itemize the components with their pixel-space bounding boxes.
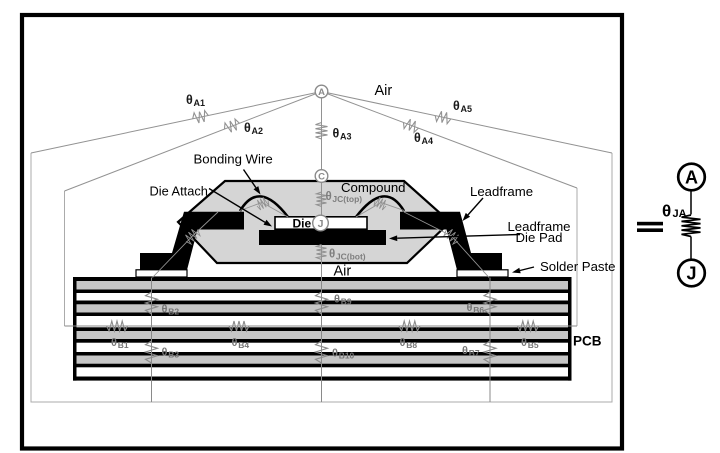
svg-text:B7: B7 [469, 348, 480, 358]
svg-text:Die Pad: Die Pad [516, 230, 563, 245]
svg-text:θ: θ [334, 294, 340, 306]
svg-text:JC(bot): JC(bot) [336, 252, 366, 262]
svg-text:B5: B5 [528, 340, 539, 350]
svg-text:Air: Air [334, 264, 352, 280]
svg-text:Bonding Wire: Bonding Wire [194, 152, 273, 167]
svg-text:B10: B10 [339, 351, 355, 361]
svg-text:θ: θ [414, 131, 421, 145]
svg-text:θ: θ [244, 121, 251, 135]
svg-text:A: A [318, 87, 325, 98]
svg-text:A2: A2 [252, 126, 264, 136]
svg-text:θ: θ [453, 99, 460, 113]
svg-text:θ: θ [162, 347, 168, 359]
svg-text:θ: θ [232, 337, 238, 349]
svg-text:B2: B2 [168, 307, 179, 317]
svg-text:θ: θ [329, 249, 335, 261]
svg-text:PCB: PCB [573, 333, 602, 348]
svg-text:Die Attach: Die Attach [150, 184, 208, 199]
svg-text:θ: θ [162, 304, 168, 316]
svg-text:Leadframe: Leadframe [470, 184, 533, 199]
svg-text:θ: θ [111, 337, 117, 349]
svg-text:θ: θ [521, 337, 527, 349]
svg-text:C: C [318, 172, 325, 183]
svg-text:B1: B1 [118, 340, 129, 350]
svg-text:J: J [318, 218, 324, 230]
svg-text:θ: θ [662, 202, 671, 221]
svg-text:A5: A5 [461, 104, 473, 114]
svg-text:A3: A3 [340, 132, 352, 142]
svg-text:B6: B6 [473, 305, 484, 315]
svg-text:θ: θ [467, 302, 473, 314]
svg-text:θ: θ [462, 345, 468, 357]
svg-text:θ: θ [332, 348, 338, 360]
svg-text:θ: θ [326, 191, 332, 203]
svg-text:Die: Die [293, 216, 312, 230]
svg-text:J: J [686, 264, 696, 284]
svg-text:A1: A1 [194, 98, 206, 108]
svg-text:JA: JA [673, 208, 687, 220]
svg-text:Solder Paste: Solder Paste [540, 259, 616, 274]
svg-text:B9: B9 [341, 297, 352, 307]
svg-text:A4: A4 [422, 136, 434, 146]
svg-text:B4: B4 [238, 340, 249, 350]
svg-text:JC(top): JC(top) [332, 194, 362, 204]
svg-text:Compound: Compound [341, 180, 406, 195]
svg-text:A: A [685, 168, 698, 188]
svg-text:θ: θ [186, 93, 193, 107]
svg-text:Air: Air [375, 83, 393, 99]
svg-text:θ: θ [333, 127, 340, 141]
svg-text:B8: B8 [406, 340, 417, 350]
svg-text:B3: B3 [168, 350, 179, 360]
svg-text:θ: θ [400, 337, 406, 349]
